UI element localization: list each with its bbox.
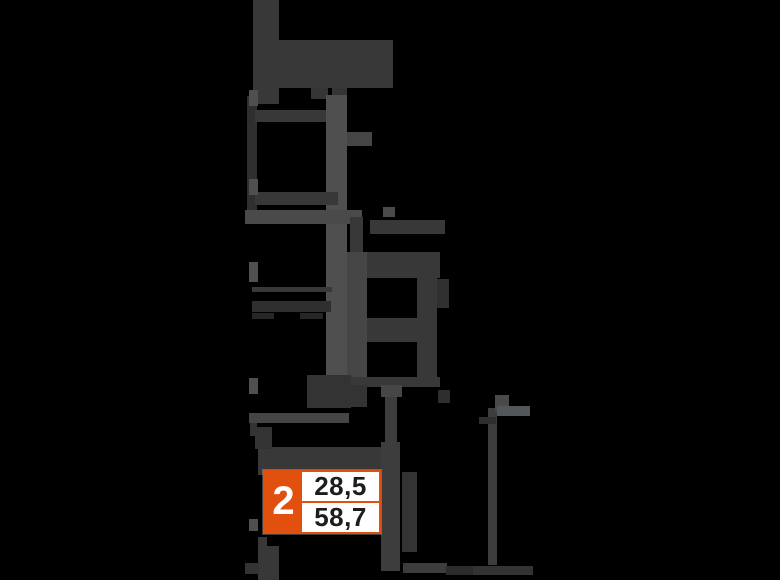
room2-right-protrusion bbox=[437, 279, 449, 308]
area-values: 28,5 58,7 bbox=[302, 472, 379, 532]
room2-top-wall bbox=[370, 220, 445, 234]
rooms-count-badge: 2 bbox=[265, 472, 302, 532]
room2-mid-band bbox=[367, 318, 417, 342]
corner-piece-bottom-left bbox=[245, 563, 259, 574]
wall-dot bbox=[383, 207, 395, 217]
room1-bottom-wall bbox=[255, 192, 338, 205]
bottom-bar-1 bbox=[403, 563, 447, 573]
right-strip-vertical bbox=[488, 408, 497, 565]
window-tick-4 bbox=[249, 378, 258, 394]
balcony-dash-1 bbox=[252, 313, 274, 319]
entry-vbar-cap bbox=[381, 385, 402, 397]
balcony-dash-2 bbox=[300, 313, 323, 319]
floor-plan bbox=[0, 0, 780, 580]
window-tick-5 bbox=[249, 519, 258, 531]
room1-right-bump bbox=[347, 132, 372, 146]
small-piece-right bbox=[438, 390, 450, 403]
entry-vbar-main bbox=[381, 442, 400, 571]
block-right-of-badge bbox=[402, 472, 417, 552]
room2-left-wall bbox=[347, 252, 367, 382]
bottom-bar-3 bbox=[473, 566, 533, 575]
balcony-line-2 bbox=[252, 301, 331, 312]
balcony-line-1 bbox=[252, 287, 332, 292]
window-tick-1 bbox=[249, 90, 258, 106]
wall-stub-below bbox=[350, 385, 367, 407]
apartment-label[interactable]: 2 28,5 58,7 bbox=[263, 470, 381, 534]
ledge-bar bbox=[249, 413, 349, 423]
flag-horizontal bbox=[497, 406, 530, 416]
bottom-bar-2 bbox=[446, 566, 473, 575]
wall-stub-vertical bbox=[350, 217, 363, 257]
stub-above-band bbox=[255, 427, 272, 449]
wall-top-vertical bbox=[253, 0, 279, 104]
cross-piece bbox=[479, 417, 496, 424]
area-value-top: 28,5 bbox=[302, 472, 379, 501]
wall-chunk-lower bbox=[307, 375, 351, 408]
corridor-wall-vertical bbox=[326, 95, 347, 385]
window-tick-3 bbox=[249, 262, 258, 282]
window-tick-2 bbox=[249, 179, 258, 195]
wall-top-rect bbox=[279, 40, 393, 88]
hall-band bbox=[245, 210, 362, 224]
room2-right-wall bbox=[417, 252, 437, 377]
room1-top-wall bbox=[255, 110, 330, 122]
area-value-bottom: 58,7 bbox=[302, 503, 379, 532]
floor-plan-viewer: 2 28,5 58,7 bbox=[0, 0, 780, 580]
bar-below-badge-b bbox=[258, 546, 279, 580]
